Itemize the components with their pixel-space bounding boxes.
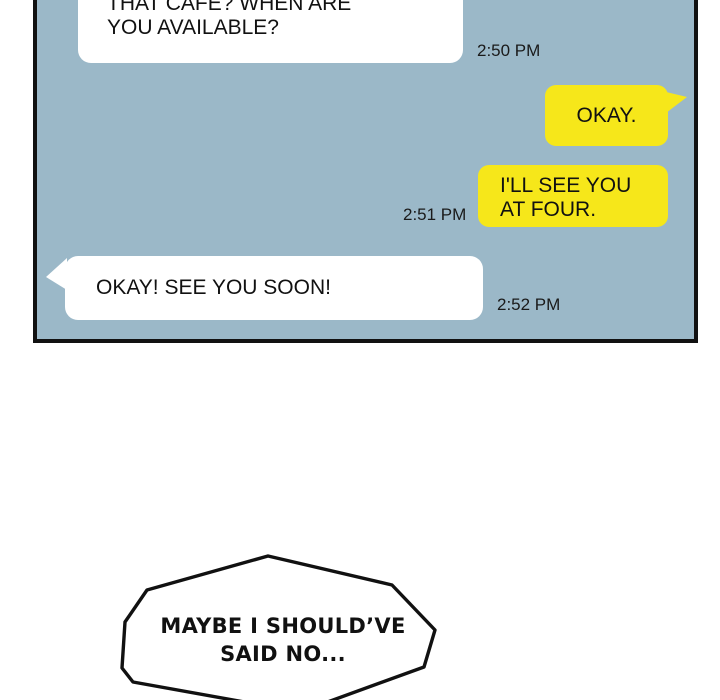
thought-line: SAID NO... <box>135 640 431 668</box>
timestamp-2-50: 2:50 PM <box>477 41 540 61</box>
message-line: YOU AVAILABLE? <box>107 16 445 40</box>
timestamp-2-52: 2:52 PM <box>497 295 560 315</box>
chat-bubble-received-2: OKAY! SEE YOU SOON! <box>65 256 483 320</box>
chat-bubble-sent-1: OKAY. <box>545 85 668 146</box>
chat-bubble-sent-2: I'LL SEE YOU AT FOUR. <box>478 165 668 227</box>
message-line: OKAY! SEE YOU SOON! <box>96 276 331 300</box>
chat-bubble-received-1: THAT CAFE? WHEN ARE YOU AVAILABLE? <box>78 0 463 63</box>
message-line: THAT CAFE? WHEN ARE <box>107 0 445 16</box>
thought-line: MAYBE I SHOULD’VE <box>135 612 431 640</box>
comic-page: THAT CAFE? WHEN ARE YOU AVAILABLE? 2:50 … <box>0 0 720 700</box>
message-line: OKAY. <box>577 104 637 128</box>
message-line: AT FOUR. <box>500 198 650 222</box>
thought-bubble-text: MAYBE I SHOULD’VE SAID NO... <box>135 612 431 668</box>
message-line: I'LL SEE YOU <box>500 174 650 198</box>
timestamp-2-51: 2:51 PM <box>403 205 466 225</box>
